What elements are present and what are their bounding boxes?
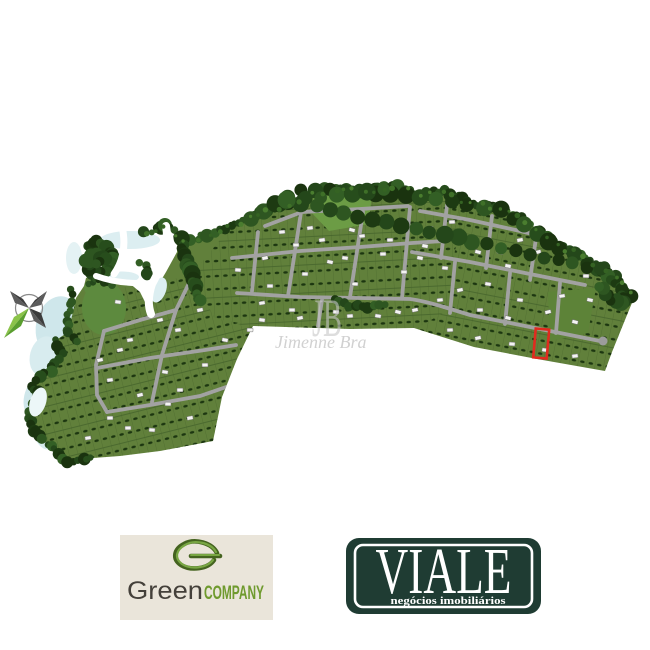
svg-text:negócios imobiliários: negócios imobiliários xyxy=(391,595,507,607)
svg-text:Jimenne Bra: Jimenne Bra xyxy=(275,332,366,352)
svg-text:COMPANY: COMPANY xyxy=(204,583,264,604)
svg-text:Green: Green xyxy=(127,577,203,605)
